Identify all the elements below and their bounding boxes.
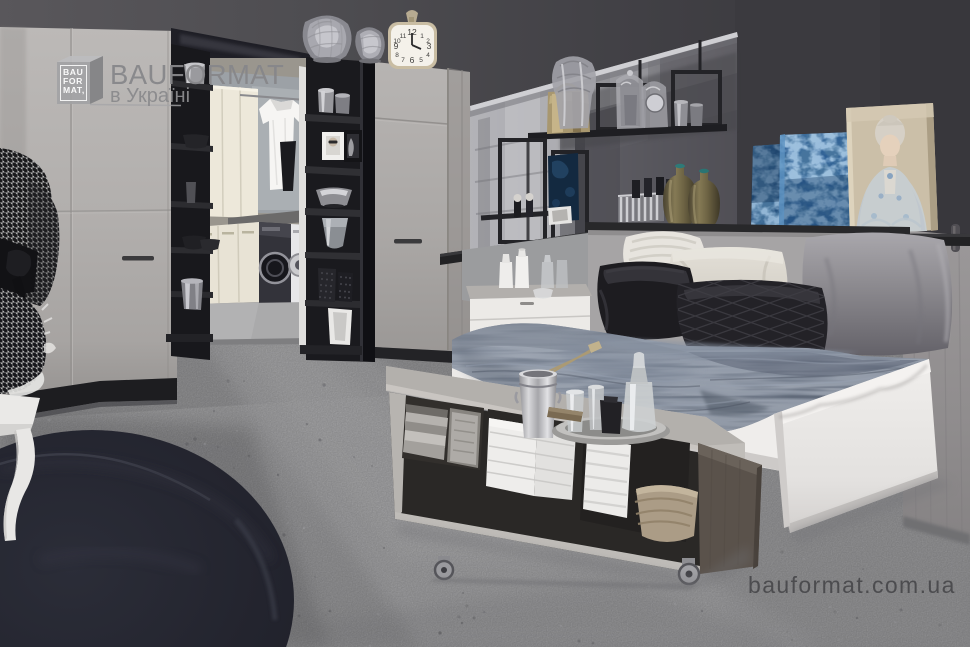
svg-text:MAT,: MAT, [63,85,85,95]
svg-text:1: 1 [420,33,424,40]
svg-text:7: 7 [401,57,405,64]
svg-text:6: 6 [410,55,415,65]
svg-text:4: 4 [426,52,430,59]
svg-text:2: 2 [426,38,430,45]
svg-text:в Україні: в Україні [110,85,190,107]
svg-text:11: 11 [400,33,407,40]
svg-text:8: 8 [395,52,399,59]
svg-text:bauformat.com.ua: bauformat.com.ua [748,572,956,598]
svg-text:5: 5 [419,57,423,64]
